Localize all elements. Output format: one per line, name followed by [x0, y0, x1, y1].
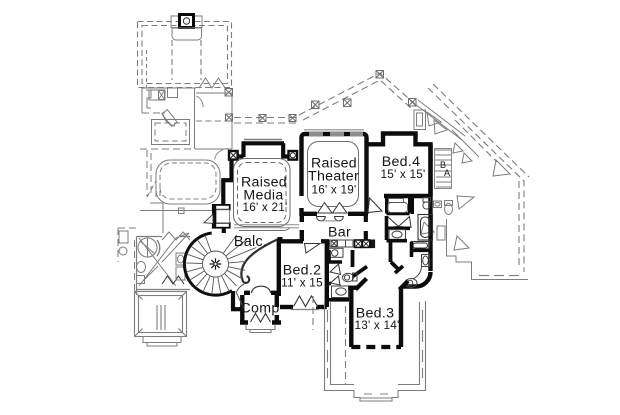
svg-text:15' x 15': 15' x 15' — [380, 167, 425, 181]
svg-text:16' x 21': 16' x 21' — [242, 200, 287, 214]
svg-text:16' x 19': 16' x 19' — [311, 183, 356, 197]
svg-text:13' x 14': 13' x 14' — [354, 318, 399, 332]
svg-text:Comp: Comp — [240, 301, 279, 317]
svg-text:Balc.: Balc. — [234, 234, 267, 250]
svg-text:Bar: Bar — [328, 225, 351, 241]
svg-text:11' x 15: 11' x 15 — [281, 276, 323, 290]
svg-text:A: A — [444, 168, 450, 178]
